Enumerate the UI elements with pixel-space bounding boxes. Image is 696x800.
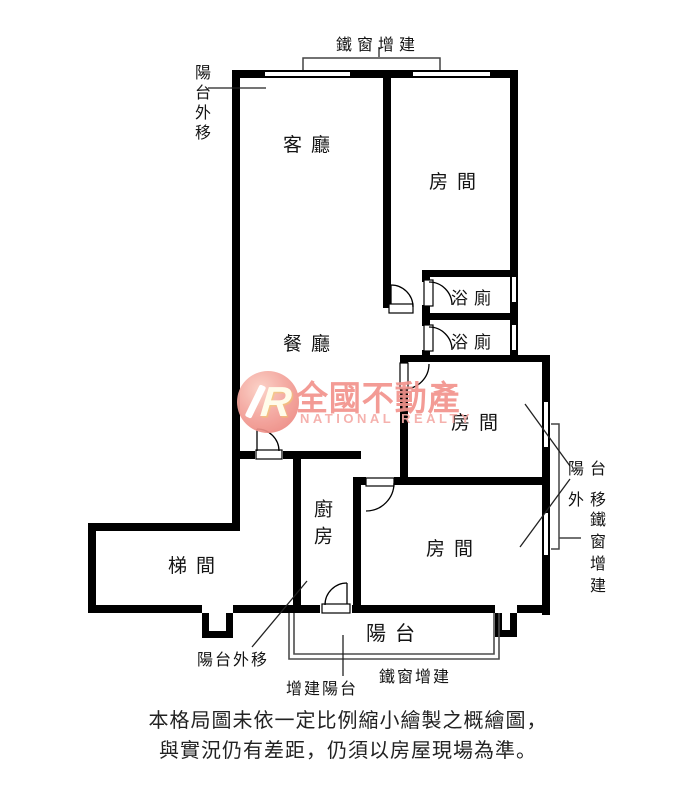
brand-watermark: R 全國不動產 NATIONAL REALTY: [234, 366, 476, 438]
room-label-bathroom-upper: 浴廁: [451, 284, 497, 309]
room-label-stairwell: 梯間: [168, 551, 224, 578]
logo-monogram: R: [258, 378, 293, 426]
room-label-balcony: 陽台: [366, 617, 424, 646]
floor-plan: 客廳 房間 浴廁 浴廁 餐廳 房間 房間 廚房 梯間 陽台 鐵窗增建 陽台外移 …: [0, 0, 696, 800]
brand-tagline: NATIONAL REALTY: [300, 411, 473, 426]
annotation-right-balcony-moved: 陽台 外移: [568, 453, 612, 515]
annotation-top-iron-window: 鐵窗增建: [336, 31, 420, 55]
annotation-bottom-balcony-moved: 陽台外移: [197, 646, 269, 670]
room-label-bedroom-bottom: 房間: [426, 534, 482, 561]
room-label-kitchen: 廚房: [309, 499, 336, 553]
iron-window-brackets: [303, 47, 581, 549]
annotation-right-iron-window: 鐵窗增建: [584, 511, 608, 599]
disclaimer-line1: 本格局圖未依一定比例縮小繪製之概繪圖，: [0, 706, 696, 736]
room-label-dining: 餐廳: [283, 329, 339, 356]
annotation-line: 陽台: [568, 453, 612, 484]
room-label-bathroom-lower: 浴廁: [451, 328, 497, 353]
annotation-left-balcony-moved: 陽台外移: [189, 64, 213, 144]
brand-logo-icon: R: [237, 371, 299, 433]
annotation-bottom-added-balcony: 增建陽台: [286, 675, 358, 699]
disclaimer-line2: 與實況仍有差距，仍須以房屋現場為準。: [0, 736, 696, 766]
room-label-living: 客廳: [283, 130, 339, 157]
annotation-bottom-iron-window: 鐵窗增建: [379, 663, 451, 687]
room-label-bedroom-top: 房間: [429, 167, 485, 194]
disclaimer: 本格局圖未依一定比例縮小繪製之概繪圖， 與實況仍有差距，仍須以房屋現場為準。: [0, 706, 696, 766]
